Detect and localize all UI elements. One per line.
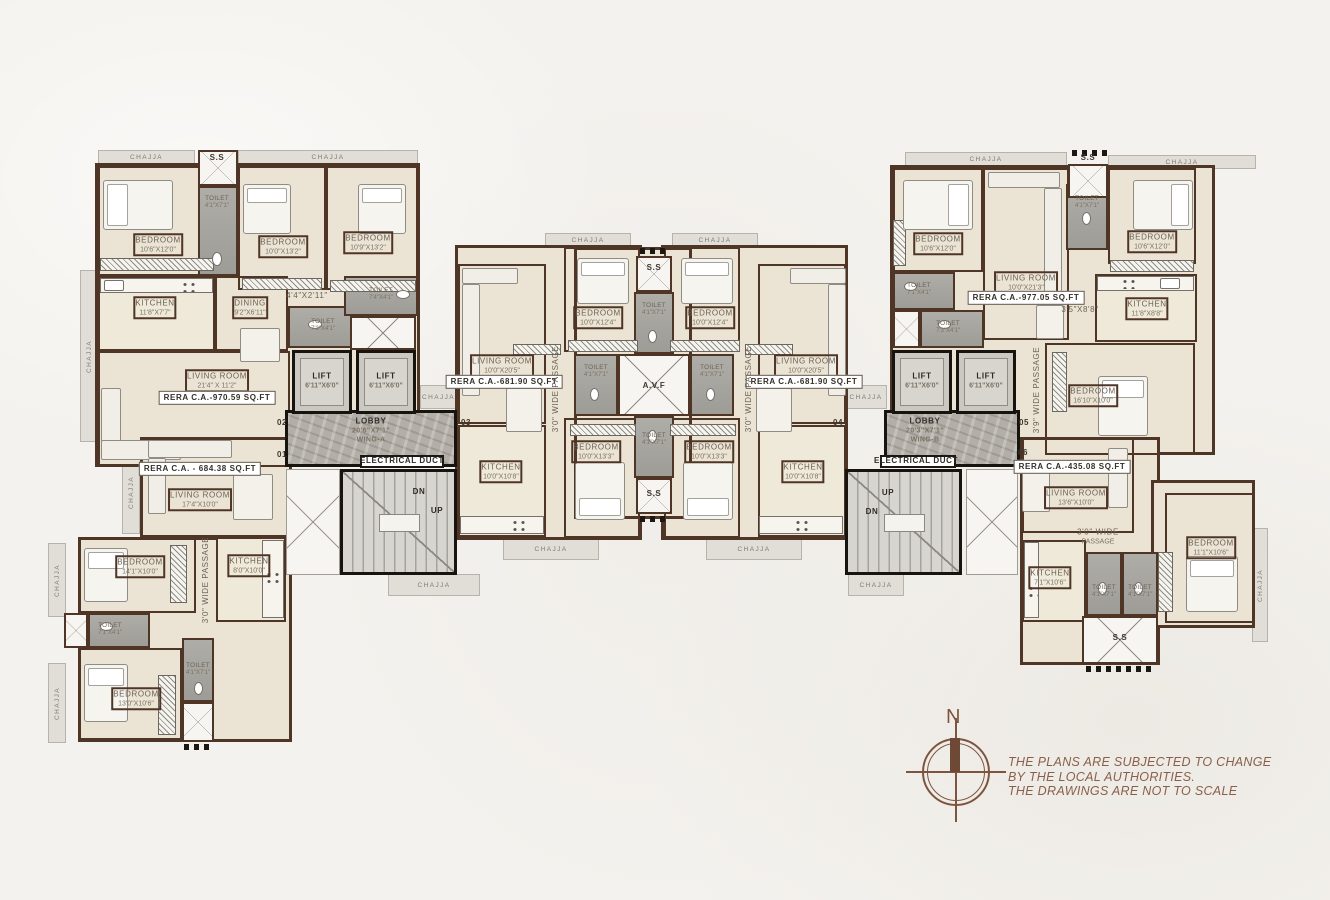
label-dim: 4'4"X2'11" bbox=[286, 291, 328, 301]
label-room: BEDROOM14'1"X10'0" bbox=[115, 555, 165, 578]
chajja-strip: CHAJJA bbox=[48, 543, 66, 617]
label-line: 3'5"X8'8" bbox=[1061, 305, 1098, 315]
label-roomsm: TOILET4'1"X7'1" bbox=[642, 302, 666, 318]
wardrobe-hatch bbox=[670, 340, 740, 352]
sofa bbox=[148, 440, 232, 458]
label-line: TOILET bbox=[642, 432, 666, 440]
label-line: KITCHEN bbox=[1030, 568, 1069, 578]
label-line: LOBBY bbox=[906, 417, 944, 427]
label-roomsm: TOILET7'1"X4'1" bbox=[907, 282, 931, 298]
label-updn: DN bbox=[866, 507, 879, 517]
label-line: ELECTRICAL DUCT bbox=[360, 456, 444, 466]
label-line: TOILET bbox=[1128, 584, 1152, 592]
label-line: TOILET bbox=[936, 320, 960, 328]
label-line: 4'1"X7'1" bbox=[205, 203, 229, 211]
wc-fixture bbox=[396, 290, 410, 299]
label-line: LIVING ROOM bbox=[996, 273, 1056, 283]
label-line: LIVING ROOM bbox=[1046, 488, 1106, 498]
label-updn: UP bbox=[882, 488, 894, 498]
wc-fixture bbox=[590, 388, 599, 401]
north-compass: N bbox=[900, 700, 1012, 822]
wardrobe-hatch bbox=[670, 424, 736, 436]
label-line: BEDROOM bbox=[135, 235, 181, 245]
wardrobe-hatch bbox=[100, 258, 214, 271]
label-rera: RERA C.A. - 684.38 SQ.FT bbox=[139, 462, 261, 476]
label-line: 4'1"X7'1" bbox=[186, 670, 210, 678]
bed bbox=[577, 258, 629, 304]
label-line: LIVING ROOM bbox=[776, 356, 836, 366]
hob-burners bbox=[1120, 277, 1135, 289]
label-ss: S.S bbox=[210, 153, 225, 163]
label-roomsm: TOILET4'1"X7'1" bbox=[584, 364, 608, 380]
chajja-label: CHAJJA bbox=[54, 564, 61, 597]
service-shaft bbox=[636, 256, 672, 292]
label-room: LIVING ROOM21'4" X 11'2" bbox=[185, 369, 249, 392]
label-line: 03 bbox=[461, 418, 471, 428]
chajja-label: CHAJJA bbox=[54, 687, 61, 720]
label-line: BEDROOM bbox=[686, 442, 732, 452]
bed-pillow bbox=[107, 184, 128, 226]
label-line: 20'6"X7'1" bbox=[352, 427, 390, 436]
label-rera: RERA C.A.-681.90 SQ.FT bbox=[446, 375, 563, 389]
bed-pillow bbox=[579, 498, 621, 516]
label-line: LIFT bbox=[305, 371, 339, 381]
label-roomsm: TOILET4'1"X7'1" bbox=[1092, 584, 1116, 600]
label-line: BEDROOM bbox=[260, 237, 306, 247]
label-line: TOILET bbox=[907, 282, 931, 290]
label-room: BEDROOM11'1"X10'6" bbox=[1186, 536, 1236, 559]
label-line: S.S bbox=[1081, 153, 1096, 163]
label-line: 4'4"X2'11" bbox=[286, 291, 328, 301]
label-line: 13'6"X10'0" bbox=[1046, 499, 1106, 508]
label-line: 10'0"X12'4" bbox=[687, 319, 733, 328]
label-room: BEDROOM10'6"X12'0" bbox=[1127, 230, 1177, 253]
wc-fixture bbox=[1082, 212, 1091, 225]
label-ss: S.S bbox=[647, 489, 662, 499]
label-line: WING-B bbox=[906, 436, 944, 445]
label-line: 3'0" WIDE PASSAGE bbox=[744, 346, 754, 432]
label-line: LIFT bbox=[969, 371, 1003, 381]
label-line: TOILET bbox=[584, 364, 608, 372]
label-room: BEDROOM10'6"X12'0" bbox=[133, 233, 183, 256]
label-line: 4'1"X7'1" bbox=[1092, 592, 1116, 600]
wardrobe-hatch bbox=[1052, 352, 1067, 412]
label-pass: 3'9" WIDE PASSAGE bbox=[1032, 347, 1042, 433]
label-line: 3'9" WIDE PASSAGE bbox=[1032, 347, 1042, 433]
label-line: KITCHEN bbox=[481, 462, 520, 472]
label-room: KITCHEN10'0"X10'8" bbox=[781, 460, 824, 483]
chajja-label: CHAJJA bbox=[130, 154, 163, 161]
label-line: RERA C.A.-681.90 SQ.FT bbox=[751, 377, 858, 387]
kitchen-counter bbox=[460, 516, 544, 534]
label-line: DINING bbox=[234, 298, 266, 308]
label-line: KITCHEN bbox=[229, 556, 268, 566]
label-line: 4'1"X7'1" bbox=[642, 310, 666, 318]
label-line: 7'3"X4'1" bbox=[936, 328, 960, 336]
label-line: 14'1"X10'0" bbox=[117, 568, 163, 577]
label-line: 4'1"X7'1" bbox=[642, 440, 666, 448]
disclaimer-line-1: THE PLANS ARE SUBJECTED TO CHANGE bbox=[1008, 755, 1271, 770]
label-room: LIVING ROOM13'6"X10'0" bbox=[1044, 486, 1108, 509]
hob-burners bbox=[180, 280, 196, 292]
label-line: 4'1"X7'1" bbox=[584, 372, 608, 380]
chajja-label: CHAJJA bbox=[699, 237, 732, 244]
label-unit: 06 bbox=[1018, 448, 1028, 458]
label-line: 06 bbox=[1018, 448, 1028, 458]
label-roomsm: TOILET4'1"X7'1" bbox=[1128, 584, 1152, 600]
label-line: 10'6"X12'0" bbox=[1129, 243, 1175, 252]
label-pass: 3'0" WIDE PASSAGE bbox=[201, 537, 211, 623]
compass-north-bar bbox=[950, 738, 960, 772]
bed-pillow bbox=[362, 188, 402, 203]
label-roomsm: TOILET7'3"X4'1" bbox=[936, 320, 960, 336]
label-line: 3'0" WIDE PASSAGE bbox=[201, 537, 211, 623]
chajja-label: CHAJJA bbox=[128, 476, 135, 509]
chajja-label: CHAJJA bbox=[738, 546, 771, 553]
label-line: 6'11"X6'0" bbox=[369, 382, 403, 391]
wc-fixture bbox=[706, 388, 715, 401]
chajja-strip: CHAJJA bbox=[905, 152, 1067, 166]
wardrobe-hatch bbox=[1110, 260, 1194, 272]
label-ss: S.S bbox=[1113, 633, 1128, 643]
bed bbox=[243, 184, 291, 234]
disclaimer-line-2: BY THE LOCAL AUTHORITIES. bbox=[1008, 770, 1271, 785]
label-line: BEDROOM bbox=[573, 442, 619, 452]
label-line: 10'0"X13'2" bbox=[260, 248, 306, 257]
label-roomsm: TOILET4'1"X7'1" bbox=[642, 432, 666, 448]
label-line: BEDROOM bbox=[345, 233, 391, 243]
label-line: BEDROOM bbox=[113, 689, 159, 699]
label-pass: 3'0" WIDE PASSAGE bbox=[551, 346, 561, 432]
chajja-strip: CHAJJA bbox=[848, 574, 904, 596]
bed-pillow bbox=[948, 184, 969, 226]
label-line: 7'1"X4'1" bbox=[98, 630, 122, 638]
label-line: WING-A bbox=[352, 436, 390, 445]
floor-plan-page: CHAJJACHAJJACHAJJACHAJJACHAJJACHAJJACHAJ… bbox=[0, 0, 1330, 900]
staircase bbox=[340, 469, 457, 575]
label-line: RERA C.A. - 684.38 SQ.FT bbox=[144, 464, 256, 474]
table bbox=[1036, 305, 1064, 339]
label-line: 04 bbox=[833, 418, 843, 428]
wardrobe-hatch bbox=[1158, 552, 1173, 612]
chajja-label: CHAJJA bbox=[970, 156, 1003, 163]
staircase bbox=[845, 469, 962, 575]
label-line: 7'3"X4'1" bbox=[311, 326, 335, 334]
label-line: 10'0"X10'8" bbox=[783, 473, 822, 482]
label-line: TOILET bbox=[642, 302, 666, 310]
label-room: BEDROOM10'0"X12'4" bbox=[573, 306, 623, 329]
bed bbox=[903, 180, 973, 230]
chajja-strip: CHAJJA bbox=[388, 574, 480, 596]
label-line: 05 bbox=[1019, 418, 1029, 428]
label-line: KITCHEN bbox=[783, 462, 822, 472]
label-lobby: LOBBY20'3"X7'1"WING-B bbox=[906, 417, 944, 446]
bed-pillow bbox=[685, 262, 729, 276]
label-roomsm: TOILET4'1"X7'1" bbox=[1075, 195, 1099, 211]
label-line: 01 bbox=[277, 450, 287, 460]
label-line: 4'1"X7'1" bbox=[1075, 203, 1099, 211]
label-avf: A.V.F bbox=[643, 381, 666, 391]
label-room: BEDROOM10'0"X13'2" bbox=[258, 235, 308, 258]
chajja-label: CHAJJA bbox=[312, 154, 345, 161]
chajja-label: CHAJJA bbox=[86, 340, 93, 373]
label-line: 7'1"X10'6" bbox=[1030, 579, 1069, 588]
wall-dashes bbox=[640, 248, 670, 254]
label-line: BEDROOM bbox=[915, 234, 961, 244]
label-room: KITCHEN11'8"X8'8" bbox=[1125, 297, 1168, 320]
label-room: LIVING ROOM17'4"X10'0" bbox=[168, 488, 232, 511]
wall-dashes bbox=[1086, 666, 1154, 672]
label-line: BEDROOM bbox=[1129, 232, 1175, 242]
label-line: LIFT bbox=[369, 371, 403, 381]
label-line: TOILET bbox=[369, 287, 393, 295]
bed bbox=[683, 462, 733, 520]
label-dim: 3'5"X8'8" bbox=[1061, 305, 1098, 315]
label-line: RERA C.A.-977.05 SQ.FT bbox=[973, 293, 1080, 303]
table bbox=[506, 388, 542, 432]
label-roomsm: TOILET4'1"X7'1" bbox=[205, 195, 229, 211]
label-line: 17'4"X10'0" bbox=[170, 501, 230, 510]
label-line: 3'0" WIDE bbox=[1077, 527, 1119, 537]
chajja-label: CHAJJA bbox=[572, 237, 605, 244]
label-rera: RERA C.A.-977.05 SQ.FT bbox=[968, 291, 1085, 305]
label-line: PASSAGE bbox=[1077, 538, 1119, 547]
north-letter: N bbox=[946, 706, 960, 729]
label-line: A.V.F bbox=[643, 381, 666, 391]
label-line: S.S bbox=[647, 263, 662, 273]
table bbox=[756, 388, 792, 432]
label-line: TOILET bbox=[186, 662, 210, 670]
wc-fixture bbox=[194, 682, 203, 695]
label-line: 7'1"X4'1" bbox=[907, 290, 931, 298]
label-line: BEDROOM bbox=[117, 557, 163, 567]
open-well bbox=[966, 469, 1018, 575]
service-shaft bbox=[350, 316, 416, 350]
label-room: BEDROOM10'0"X12'4" bbox=[685, 306, 735, 329]
service-shaft bbox=[64, 613, 88, 648]
sink bbox=[1160, 278, 1180, 289]
table bbox=[240, 328, 280, 362]
label-line: TOILET bbox=[98, 622, 122, 630]
hob-burners bbox=[510, 518, 525, 531]
label-line: 16'10"X10'0" bbox=[1070, 397, 1116, 406]
label-unit: 05 bbox=[1019, 418, 1029, 428]
chajja-label: CHAJJA bbox=[860, 582, 893, 589]
label-room: KITCHEN7'1"X10'6" bbox=[1028, 566, 1071, 589]
label-line: KITCHEN bbox=[135, 298, 174, 308]
label-line: 20'3"X7'1" bbox=[906, 427, 944, 436]
label-line: 11'8"X7'7" bbox=[135, 309, 174, 318]
label-roomsm: TOILET4'1"X7'1" bbox=[700, 364, 724, 380]
label-line: 4'1"X7'1" bbox=[700, 372, 724, 380]
label-line: 6'11"X6'0" bbox=[305, 382, 339, 391]
label-roomsm: TOILET7'4"X4'1" bbox=[369, 287, 393, 303]
chajja-label: CHAJJA bbox=[535, 546, 568, 553]
label-line: 10'0"X13'3" bbox=[573, 453, 619, 462]
bed-pillow bbox=[1171, 184, 1189, 226]
wc-fixture bbox=[212, 252, 222, 266]
label-line: 10'6"X12'0" bbox=[135, 246, 181, 255]
sink bbox=[104, 280, 124, 291]
label-line: S.S bbox=[210, 153, 225, 163]
bed bbox=[103, 180, 173, 230]
label-line: 10'9"X13'2" bbox=[345, 244, 391, 253]
label-room: BEDROOM10'9"X13'2" bbox=[343, 231, 393, 254]
label-unit: 03 bbox=[461, 418, 471, 428]
label-ss: S.S bbox=[647, 263, 662, 273]
label-line: 11'8"X8'8" bbox=[1127, 310, 1166, 319]
bed-pillow bbox=[88, 668, 124, 686]
label-unit: 04 bbox=[833, 418, 843, 428]
label-line: TOILET bbox=[1092, 584, 1116, 592]
label-line: LIVING ROOM bbox=[187, 371, 247, 381]
label-line: TOILET bbox=[1075, 195, 1099, 203]
label-line: DN bbox=[866, 507, 879, 517]
disclaimer-text: THE PLANS ARE SUBJECTED TO CHANGE BY THE… bbox=[1008, 755, 1271, 799]
label-line: 10'6"X12'0" bbox=[915, 245, 961, 254]
label-dim2: 3'0" WIDEPASSAGE bbox=[1077, 527, 1119, 546]
label-updn: DN bbox=[413, 487, 426, 497]
sofa bbox=[790, 268, 846, 284]
bed bbox=[1186, 556, 1238, 612]
label-line: UP bbox=[882, 488, 894, 498]
label-room: BEDROOM13'0"X10'6" bbox=[111, 687, 161, 710]
wardrobe-hatch bbox=[170, 545, 187, 603]
wardrobe-hatch bbox=[570, 424, 636, 436]
label-line: 21'4" X 11'2" bbox=[187, 382, 247, 391]
table bbox=[233, 474, 273, 520]
label-line: 10'0"X13'3" bbox=[686, 453, 732, 462]
label-lift: LIFT6'11"X6'0" bbox=[969, 371, 1003, 390]
label-line: BEDROOM bbox=[1188, 538, 1234, 548]
label-line: TOILET bbox=[311, 318, 335, 326]
bed-pillow bbox=[247, 188, 287, 203]
label-rera: RERA C.A.-435.08 SQ.FT bbox=[1014, 460, 1131, 474]
label-tiny: ELECTRICAL DUCT bbox=[874, 456, 958, 466]
label-unit: 02 bbox=[277, 418, 287, 428]
label-line: BEDROOM bbox=[1070, 386, 1116, 396]
label-line: RERA C.A.-435.08 SQ.FT bbox=[1019, 462, 1126, 472]
service-shaft bbox=[893, 310, 920, 348]
chajja-label: CHAJJA bbox=[850, 394, 883, 401]
label-line: 13'0"X10'6" bbox=[113, 700, 159, 709]
disclaimer-line-3: THE DRAWINGS ARE NOT TO SCALE bbox=[1008, 784, 1271, 799]
chajja-label: CHAJJA bbox=[422, 394, 455, 401]
wall-dashes bbox=[184, 744, 214, 750]
label-line: 7'4"X4'1" bbox=[369, 295, 393, 303]
bed bbox=[575, 462, 625, 520]
label-roomsm: TOILET7'3"X4'1" bbox=[311, 318, 335, 334]
label-room: BEDROOM10'0"X13'3" bbox=[684, 440, 734, 463]
label-line: BEDROOM bbox=[687, 308, 733, 318]
label-roomsm: TOILET7'1"X4'1" bbox=[98, 622, 122, 638]
label-rera: RERA C.A.-970.59 SQ.FT bbox=[159, 391, 276, 405]
label-lift: LIFT6'11"X6'0" bbox=[905, 371, 939, 390]
label-lift: LIFT6'11"X6'0" bbox=[305, 371, 339, 390]
service-shaft bbox=[1068, 164, 1108, 198]
label-line: TOILET bbox=[205, 195, 229, 203]
bed-pillow bbox=[1190, 560, 1234, 577]
bed bbox=[1133, 180, 1193, 230]
label-line: 10'0"X12'4" bbox=[575, 319, 621, 328]
label-lobby: LOBBY20'6"X7'1"WING-A bbox=[352, 417, 390, 446]
hob-burners bbox=[793, 518, 808, 531]
wardrobe-hatch bbox=[568, 340, 638, 352]
service-shaft bbox=[182, 702, 214, 742]
label-line: S.S bbox=[647, 489, 662, 499]
label-line: 9'2"X6'11" bbox=[234, 309, 266, 318]
label-line: UP bbox=[431, 506, 443, 516]
label-rera: RERA C.A.-681.90 SQ.FT bbox=[746, 375, 863, 389]
label-line: 6'11"X6'0" bbox=[969, 382, 1003, 391]
label-lift: LIFT6'11"X6'0" bbox=[369, 371, 403, 390]
chajja-label: CHAJJA bbox=[418, 582, 451, 589]
label-line: RERA C.A.-970.59 SQ.FT bbox=[164, 393, 271, 403]
label-line: 3'0" WIDE PASSAGE bbox=[551, 346, 561, 432]
label-room: KITCHEN10'0"X10'8" bbox=[479, 460, 522, 483]
chajja-label: CHAJJA bbox=[1257, 569, 1264, 602]
label-ss: S.S bbox=[1081, 153, 1096, 163]
bed-pillow bbox=[581, 262, 625, 276]
label-line: LIFT bbox=[905, 371, 939, 381]
label-line: TOILET bbox=[700, 364, 724, 372]
label-room: DINING9'2"X6'11" bbox=[232, 296, 268, 319]
label-line: ELECTRICAL DUCT bbox=[874, 456, 958, 466]
bed bbox=[358, 184, 406, 234]
wardrobe-hatch bbox=[242, 278, 322, 290]
label-line: LOBBY bbox=[352, 417, 390, 427]
label-tiny: ELECTRICAL DUCT bbox=[360, 456, 444, 466]
label-line: 10'0"X10'8" bbox=[481, 473, 520, 482]
label-line: 8'0"X10'0" bbox=[229, 567, 268, 576]
chajja-strip: CHAJJA bbox=[706, 539, 802, 560]
chajja-strip: CHAJJA bbox=[48, 663, 66, 743]
label-updn: UP bbox=[431, 506, 443, 516]
label-line: 6'11"X6'0" bbox=[905, 382, 939, 391]
sofa bbox=[988, 172, 1060, 188]
label-line: LIVING ROOM bbox=[170, 490, 230, 500]
label-room: BEDROOM10'0"X13'3" bbox=[571, 440, 621, 463]
wc-fixture bbox=[648, 330, 657, 343]
label-room: KITCHEN8'0"X10'0" bbox=[227, 554, 270, 577]
bed bbox=[681, 258, 733, 304]
label-unit: 01 bbox=[277, 450, 287, 460]
label-line: DN bbox=[413, 487, 426, 497]
sofa bbox=[1108, 448, 1128, 508]
label-line: S.S bbox=[1113, 633, 1128, 643]
label-room: KITCHEN11'8"X7'7" bbox=[133, 296, 176, 319]
label-pass: 3'0" WIDE PASSAGE bbox=[744, 346, 754, 432]
label-line: 4'1"X7'1" bbox=[1128, 592, 1152, 600]
label-room: BEDROOM10'6"X12'0" bbox=[913, 232, 963, 255]
bed-pillow bbox=[687, 498, 729, 516]
wall-dashes bbox=[640, 516, 670, 522]
chajja-strip: CHAJJA bbox=[503, 539, 599, 560]
label-room: BEDROOM16'10"X10'0" bbox=[1068, 384, 1118, 407]
label-line: RERA C.A.-681.90 SQ.FT bbox=[451, 377, 558, 387]
label-line: KITCHEN bbox=[1127, 299, 1166, 309]
sofa bbox=[462, 268, 518, 284]
label-line: 02 bbox=[277, 418, 287, 428]
label-line: BEDROOM bbox=[575, 308, 621, 318]
label-roomsm: TOILET4'1"X7'1" bbox=[186, 662, 210, 678]
label-line: LIVING ROOM bbox=[472, 356, 532, 366]
label-line: 11'1"X10'6" bbox=[1188, 549, 1234, 558]
open-well bbox=[286, 469, 340, 575]
